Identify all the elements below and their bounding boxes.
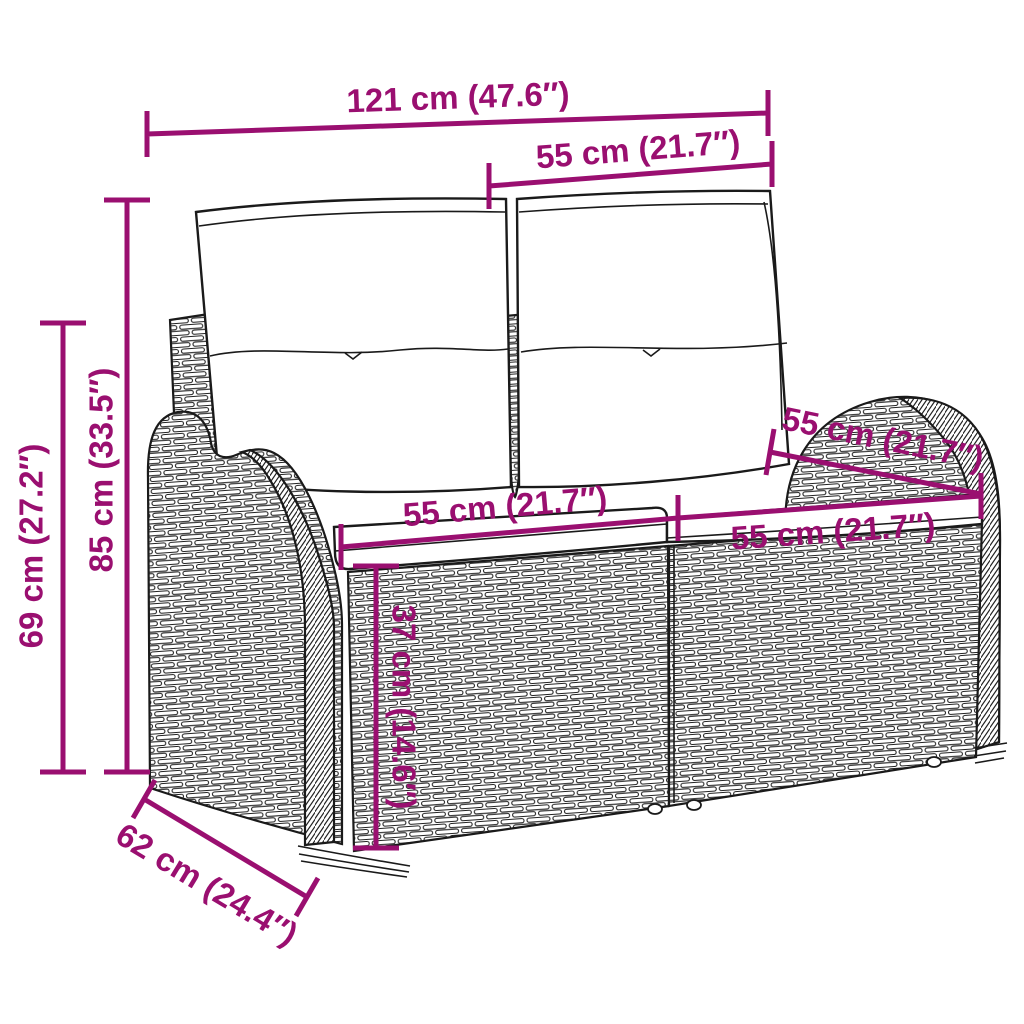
dim-arm-height: 69 cm (27.2″)	[13, 323, 87, 772]
dim-total-height: 85 cm (33.5″)	[83, 200, 151, 772]
dim-total-height-label: 85 cm (33.5″)	[83, 368, 120, 573]
dim-overall-width-label: 121 cm (47.6″)	[346, 75, 570, 120]
dim-seat-height-label: 37 cm (14.6″)	[386, 605, 423, 810]
dimension-diagram: 121 cm (47.6″) 55 cm (21.7″) 85 cm (33.5…	[0, 0, 1024, 1024]
dim-arm-height-label: 69 cm (27.2″)	[13, 444, 50, 649]
back-cushion-right	[517, 191, 789, 487]
back-cushion-left	[196, 198, 511, 492]
